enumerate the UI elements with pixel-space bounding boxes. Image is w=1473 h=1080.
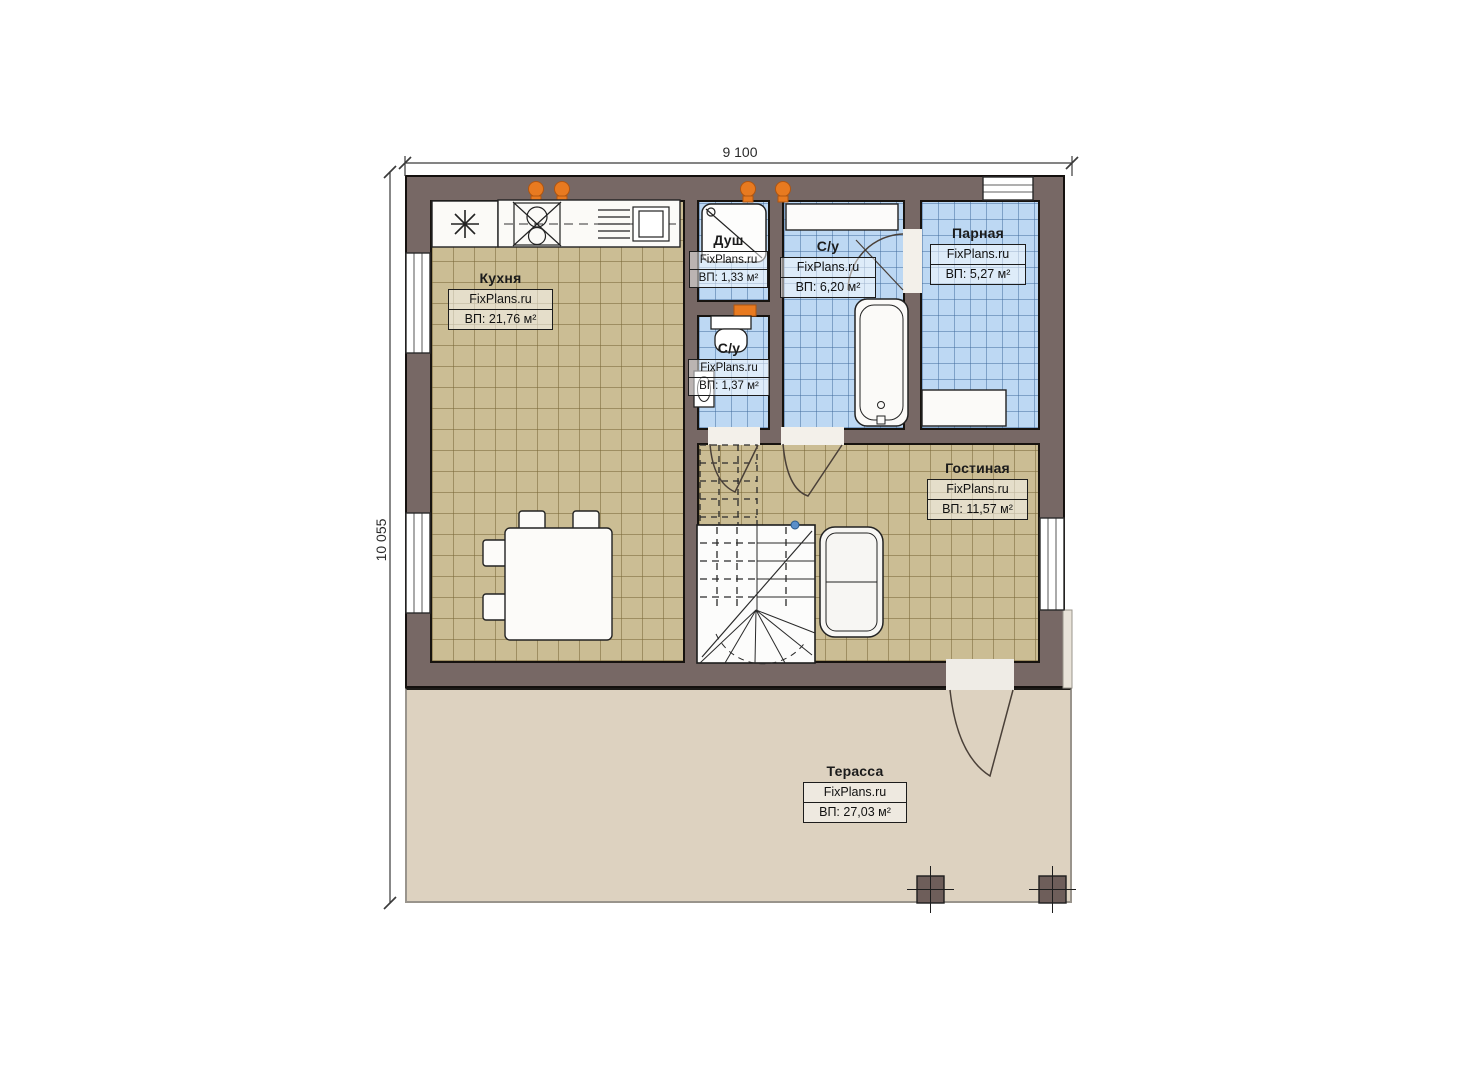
watermark-text: FixPlans.ru <box>931 245 1025 265</box>
room-name-terrace: Терасса <box>827 763 884 779</box>
room-area: ВП: 21,76 м² <box>449 310 552 329</box>
watermark-box: FixPlans.ru ВП: 6,20 м² <box>780 257 876 298</box>
room-name-bathroom: С/у <box>817 238 839 254</box>
dimension-top-label: 9 100 <box>695 144 785 160</box>
watermark-box: FixPlans.ru ВП: 5,27 м² <box>930 244 1026 285</box>
watermark-box: FixPlans.ru ВП: 21,76 м² <box>448 289 553 330</box>
room-label-bathroom: С/у FixPlans.ru ВП: 6,20 м² <box>780 238 876 298</box>
watermark-text: FixPlans.ru <box>781 258 875 278</box>
room-label-living: Гостиная FixPlans.ru ВП: 11,57 м² <box>927 460 1028 520</box>
room-label-kitchen: Кухня FixPlans.ru ВП: 21,76 м² <box>448 270 553 330</box>
room-area: ВП: 27,03 м² <box>804 803 906 822</box>
watermark-box: FixPlans.ru ВП: 11,57 м² <box>927 479 1028 520</box>
room-area: ВП: 6,20 м² <box>781 278 875 297</box>
watermark-text: FixPlans.ru <box>449 290 552 310</box>
room-name-wc: С/у <box>718 340 740 356</box>
watermark-text: FixPlans.ru <box>804 783 906 803</box>
watermark-box: FixPlans.ru ВП: 1,37 м² <box>688 359 770 396</box>
room-bathroom-floor <box>782 200 905 430</box>
watermark-text: FixPlans.ru <box>690 252 767 270</box>
room-name-kitchen: Кухня <box>480 270 522 286</box>
floor-plan-canvas: 9 100 10 055 Кухня FixPlans.ru ВП: 21,76… <box>0 0 1473 1080</box>
dimension-left-label: 10 055 <box>373 505 389 575</box>
room-name-sauna: Парная <box>952 225 1004 241</box>
room-label-terrace: Терасса FixPlans.ru ВП: 27,03 м² <box>803 763 907 823</box>
watermark-text: FixPlans.ru <box>928 480 1027 500</box>
room-label-sauna: Парная FixPlans.ru ВП: 5,27 м² <box>930 225 1026 285</box>
room-area: ВП: 1,33 м² <box>690 270 767 287</box>
room-area: ВП: 1,37 м² <box>689 378 769 395</box>
watermark-box: FixPlans.ru ВП: 27,03 м² <box>803 782 907 823</box>
room-name-shower: Душ <box>713 232 743 248</box>
watermark-box: FixPlans.ru ВП: 1,33 м² <box>689 251 768 288</box>
room-name-living: Гостиная <box>945 460 1010 476</box>
watermark-text: FixPlans.ru <box>689 360 769 378</box>
terrace-slab <box>405 688 1072 903</box>
room-area: ВП: 11,57 м² <box>928 500 1027 519</box>
room-label-shower: Душ FixPlans.ru ВП: 1,33 м² <box>689 232 768 288</box>
room-label-wc: С/у FixPlans.ru ВП: 1,37 м² <box>688 340 770 396</box>
room-area: ВП: 5,27 м² <box>931 265 1025 284</box>
